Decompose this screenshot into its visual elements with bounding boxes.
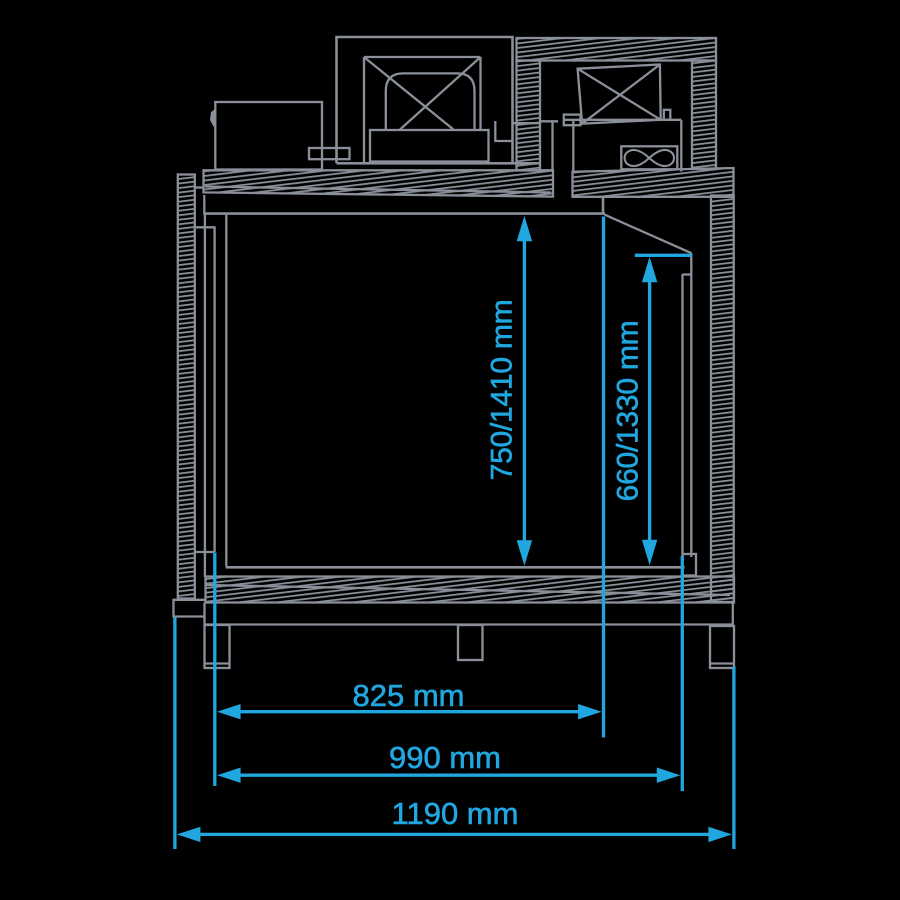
svg-text:750/1410 mm: 750/1410 mm xyxy=(486,300,519,481)
svg-text:990 mm: 990 mm xyxy=(389,740,501,775)
svg-text:825 mm: 825 mm xyxy=(353,678,465,713)
svg-text:1190 mm: 1190 mm xyxy=(392,796,519,831)
svg-text:660/1330 mm: 660/1330 mm xyxy=(612,321,645,502)
